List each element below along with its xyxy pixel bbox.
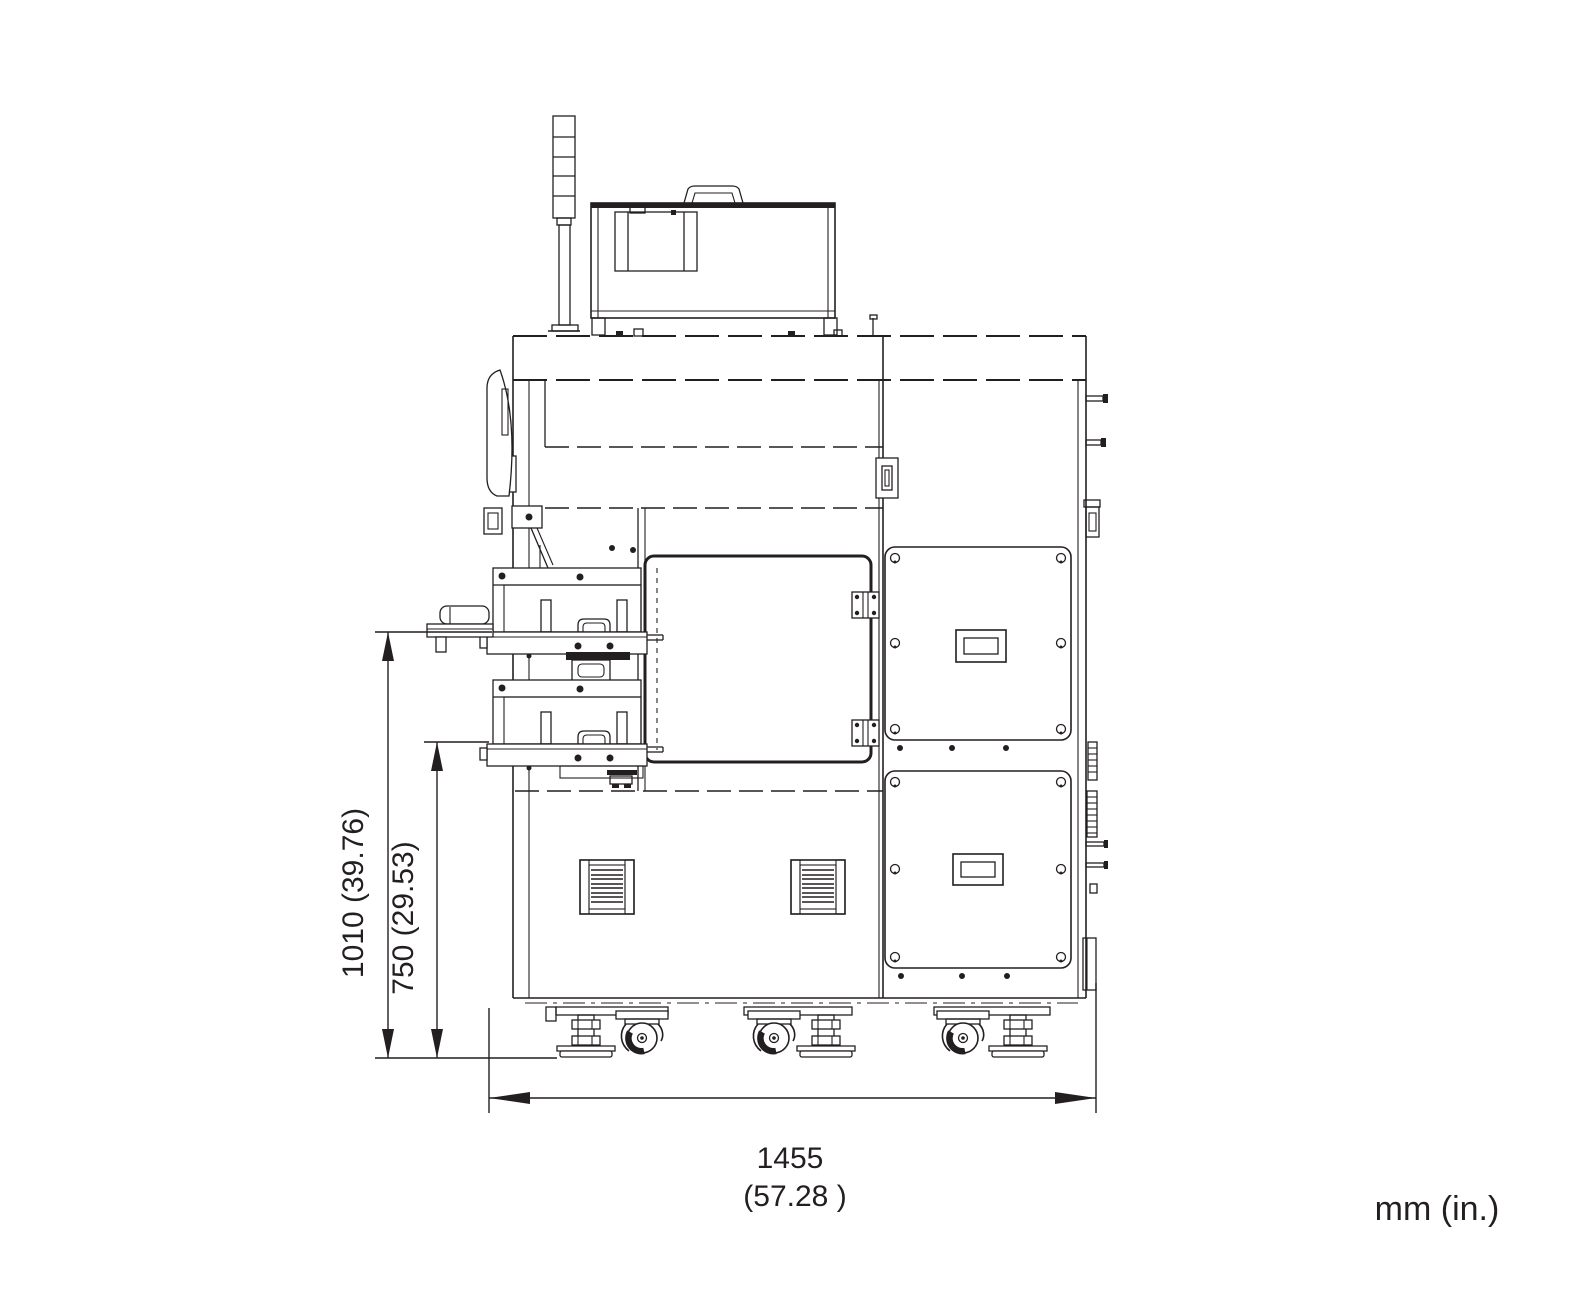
arrowhead-left-icon <box>489 1092 530 1104</box>
caster-left <box>616 1011 668 1053</box>
feeder-tray-1 <box>480 568 663 659</box>
feeder-tray-2 <box>480 680 663 771</box>
dim-label-width-in: (57.28 ) <box>743 1180 846 1213</box>
arrowhead-up-icon <box>382 632 394 661</box>
terminal-strip-2 <box>1087 791 1097 837</box>
curved-guard <box>484 370 512 534</box>
dim-label-height-inner: 750 (29.53) <box>387 841 420 994</box>
dim-label-height-outer: 1010 (39.76) <box>337 808 370 978</box>
top-console <box>591 186 837 335</box>
lower-tray-connector <box>560 766 643 788</box>
caster-right <box>937 1011 989 1053</box>
access-panel-lower <box>885 771 1071 968</box>
center-latch <box>876 458 898 498</box>
vent-left <box>580 860 634 914</box>
arrowhead-down-icon <box>431 1029 443 1058</box>
lower-cabinet <box>515 791 883 914</box>
door-hinge-upper <box>852 592 879 618</box>
door-hinge-lower <box>852 720 879 746</box>
tray-connector <box>566 652 630 683</box>
support-bracket <box>512 506 553 568</box>
leveling-foot-left <box>557 1015 615 1057</box>
caster-middle <box>748 1011 800 1053</box>
leveling-foot-right <box>989 1015 1047 1057</box>
center-door <box>645 556 879 762</box>
dimension-height-750: 750 (29.53) <box>387 742 489 1058</box>
access-panel-upper <box>885 547 1071 740</box>
technical-drawing-page: 1010 (39.76) 750 (29.53) 1455 (57.28 ) m… <box>0 0 1576 1301</box>
terminal-strip-1 <box>1088 742 1097 780</box>
machine-front-view-drawing: 1010 (39.76) 750 (29.53) 1455 (57.28 ) m… <box>0 0 1576 1301</box>
vent-right <box>791 860 845 914</box>
arrowhead-up-icon <box>431 742 443 771</box>
leveling-foot-middle <box>797 1015 855 1057</box>
signal-tower <box>548 116 580 331</box>
arrowhead-down-icon <box>382 1029 394 1058</box>
console-window <box>615 212 697 271</box>
machine-top-band <box>513 315 1086 380</box>
dim-label-width-mm: 1455 <box>757 1142 824 1175</box>
arrowhead-right-icon <box>1055 1092 1096 1104</box>
units-note: mm (in.) <box>1375 1190 1500 1228</box>
